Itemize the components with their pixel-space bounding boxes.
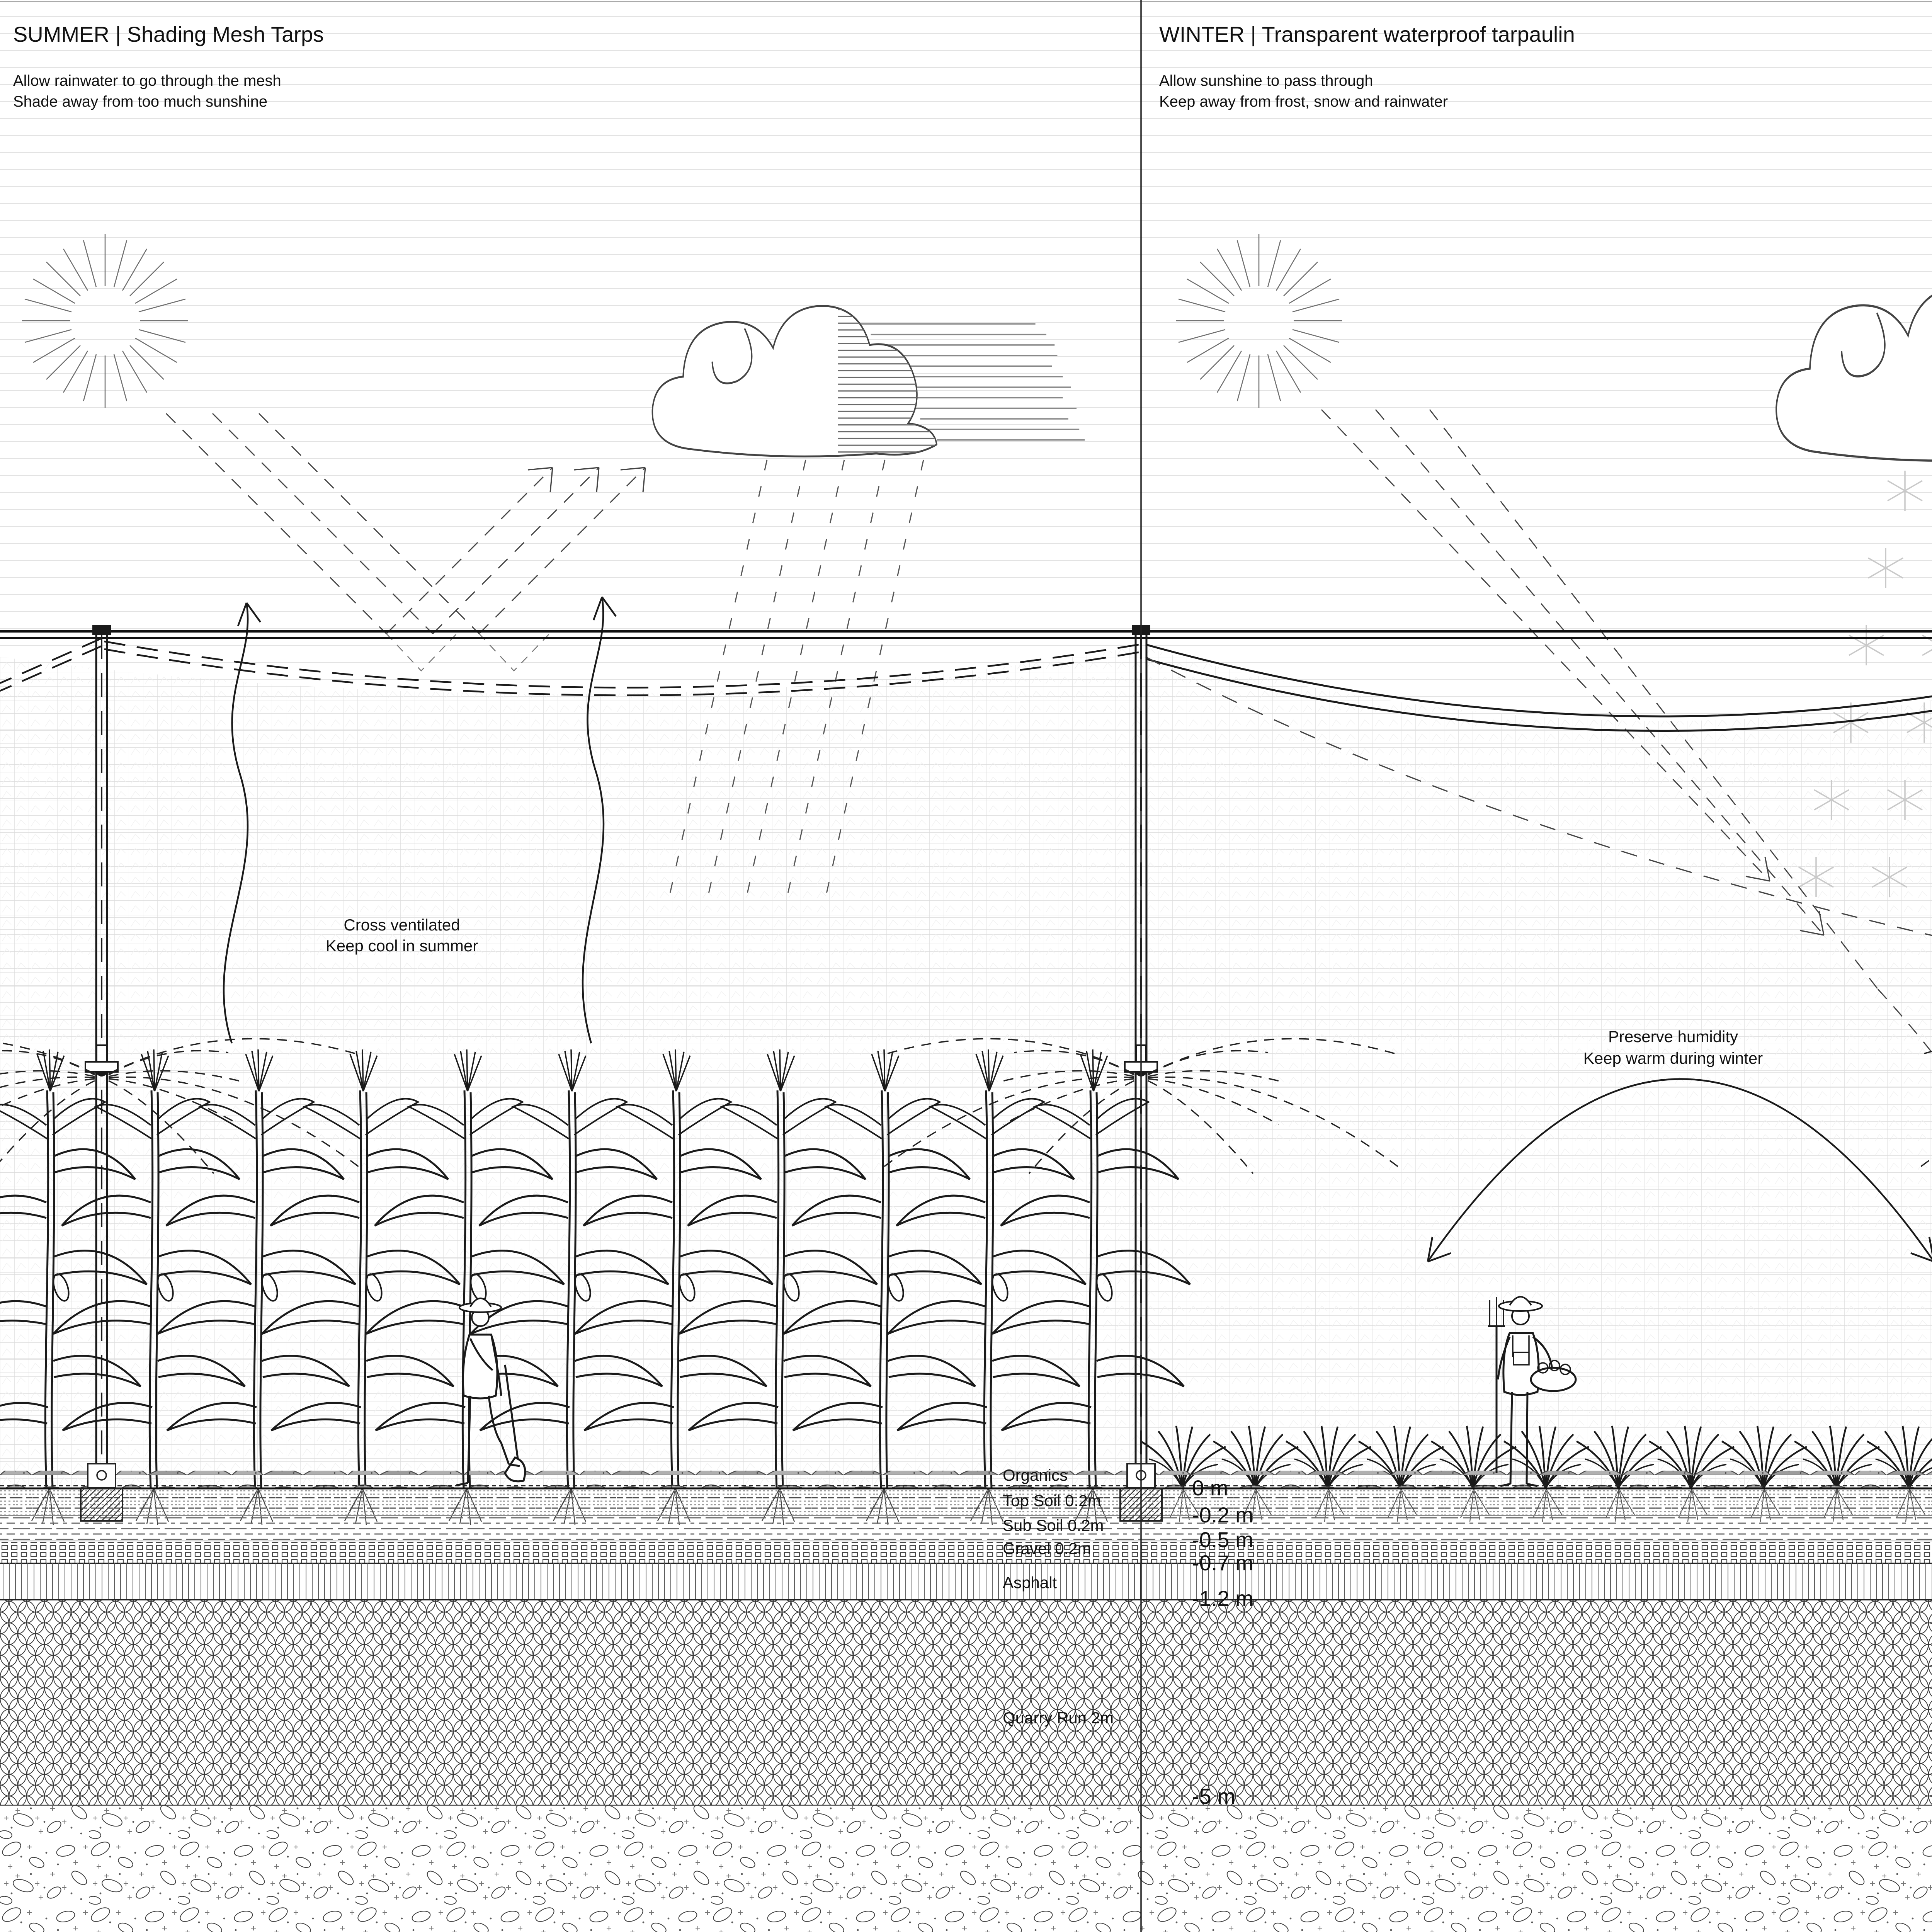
winter-subtitle-1: Allow sunshine to pass through [1159, 72, 1373, 89]
depth-label-07: -0.7 m [1192, 1551, 1253, 1575]
summer-title: SUMMER | Shading Mesh Tarps [13, 22, 324, 46]
winter-annotation-1: Preserve humidity [1608, 1027, 1738, 1046]
soil-label-topsoil: Top Soil 0.2m [1003, 1492, 1101, 1510]
summer-annotation-2: Keep cool in summer [326, 937, 478, 955]
summer-subtitle-2: Shade away from too much sunshine [13, 93, 267, 110]
section-diagram-page: SUMMER | Shading Mesh Tarps Allow rainwa… [0, 0, 1932, 1932]
summer-annotation-1: Cross ventilated [344, 916, 460, 934]
canopy-interior-grid [0, 646, 1932, 1488]
soil-label-quarry: Quarry Run 2m [1003, 1709, 1114, 1727]
depth-label-0: 0 m [1192, 1476, 1228, 1500]
soil-label-organics: Organics [1003, 1466, 1068, 1484]
winter-subtitle-2: Keep away from frost, snow and rainwater [1159, 93, 1448, 110]
depth-label-5: -5 m [1192, 1784, 1235, 1808]
summer-subtitle-1: Allow rainwater to go through the mesh [13, 72, 281, 89]
depth-label-02: -0.2 m [1192, 1503, 1253, 1527]
winter-title: WINTER | Transparent waterproof tarpauli… [1159, 22, 1575, 46]
soil-label-gravel: Gravel 0.2m [1003, 1539, 1091, 1558]
soil-label-subsoil: Sub Soil 0.2m [1003, 1516, 1104, 1534]
depth-label-12: -1.2 m [1192, 1586, 1253, 1611]
soil-label-asphalt: Asphalt [1003, 1573, 1057, 1592]
soil-section [0, 1471, 1932, 1932]
depth-label-05: -0.5 m [1192, 1527, 1253, 1552]
winter-annotation-2: Keep warm during winter [1583, 1049, 1763, 1067]
section-drawing: SUMMER | Shading Mesh Tarps Allow rainwa… [0, 0, 1932, 1932]
